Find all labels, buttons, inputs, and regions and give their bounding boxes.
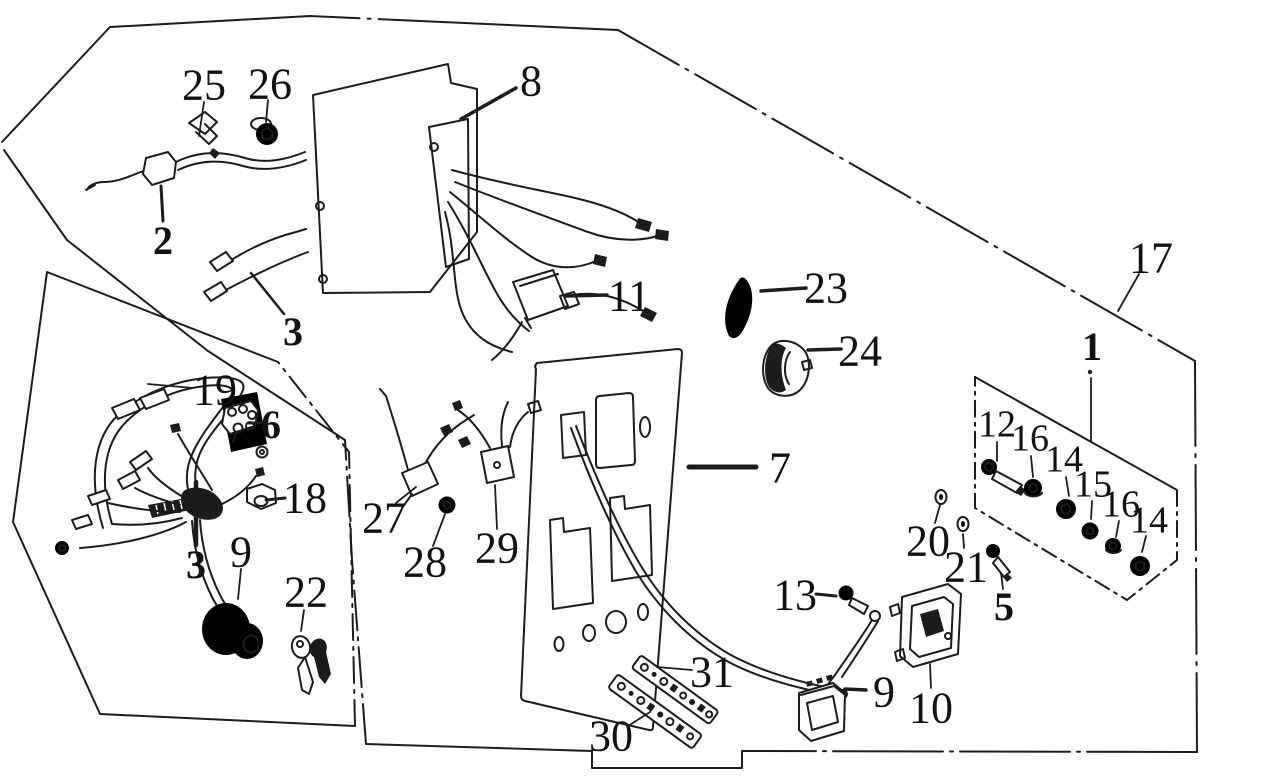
part-14b-lock-washer (1130, 556, 1151, 577)
part-16-flange-nut (1024, 479, 1042, 497)
leader-line-2-3 (161, 186, 163, 221)
part-label-7-19: 7 (769, 443, 791, 492)
leader-line-11-5 (565, 295, 607, 296)
part-label-19-10: 19 (193, 365, 237, 414)
part-label-29-18: 29 (475, 523, 519, 572)
part-label-28-17: 28 (403, 537, 447, 586)
part-label-3-4: 3 (283, 309, 303, 354)
part-label-22-15: 22 (284, 567, 328, 616)
part-label-5-27: 5 (994, 584, 1014, 629)
part-label-25-0: 25 (182, 60, 226, 109)
part-18-nut (247, 484, 276, 509)
part-13-screw-lead (826, 586, 880, 689)
part-28-grommet (439, 497, 456, 514)
part-3-terminal-wires-upper (204, 229, 308, 301)
part-label-9-14: 9 (230, 527, 252, 576)
part-25-screw (189, 112, 220, 159)
part-26-grommet (251, 118, 278, 145)
part-label-24-7: 24 (838, 326, 882, 375)
leader-line-3-4 (251, 273, 284, 314)
part-16b-flange-nut (1105, 538, 1121, 554)
part-label-23-6: 23 (804, 263, 848, 312)
leader-line-9-23 (845, 689, 866, 690)
part-23-gasket (725, 278, 752, 339)
part-label-8-2: 8 (520, 56, 542, 105)
part-20-washer (936, 490, 947, 504)
parts-diagram-page: 2526823112324171196183922272829731301391… (0, 0, 1262, 781)
part-label-2-3: 2 (153, 218, 173, 263)
leader-line-24-7 (808, 349, 841, 350)
part-label-26-1: 26 (248, 59, 292, 108)
part-12-bolt (981, 459, 1026, 496)
part-label-18-12: 18 (283, 473, 327, 522)
main-wiring-harness-bundle (445, 170, 669, 360)
part-29-plate (440, 400, 541, 483)
part-label-9-23: 9 (873, 667, 895, 716)
part-label-10-24: 10 (909, 683, 953, 732)
part-label-6-11: 6 (261, 402, 281, 447)
part-2-wire-lead (86, 152, 306, 190)
part-15-nut (1082, 523, 1099, 540)
part-label-31-20: 31 (690, 647, 734, 696)
part-label-13-22: 13 (773, 570, 817, 619)
part-10-rocker-switch (890, 584, 961, 667)
part-label-30-21: 30 (589, 711, 633, 760)
part-label-17-8: 17 (1129, 233, 1173, 282)
part-11-relay-box (513, 270, 579, 328)
part-label-14-33: 14 (1130, 499, 1168, 541)
part-5-screw (986, 544, 1012, 582)
part-label-3-13: 3 (186, 542, 206, 587)
part-label-1-9: 1 (1082, 324, 1102, 369)
part-9-switch-box (799, 674, 845, 741)
part-label-21-26: 21 (944, 542, 988, 591)
leader-dot-1 (1088, 370, 1092, 374)
part-21-washer (958, 517, 969, 531)
part-label-16-29: 16 (1011, 417, 1049, 459)
part-label-27-16: 27 (362, 493, 406, 542)
leader-line-13-22 (816, 594, 836, 596)
exploded-parts-diagram: 2526823112324171196183922272829731301391… (0, 0, 1262, 781)
leader-line-29-18 (495, 485, 497, 529)
part-22-keys (289, 634, 331, 694)
part-24-connector (763, 341, 812, 396)
part-9-ignition-switch (202, 603, 263, 659)
leader-line-23-6 (761, 288, 806, 291)
part-label-11-5: 11 (608, 271, 650, 320)
